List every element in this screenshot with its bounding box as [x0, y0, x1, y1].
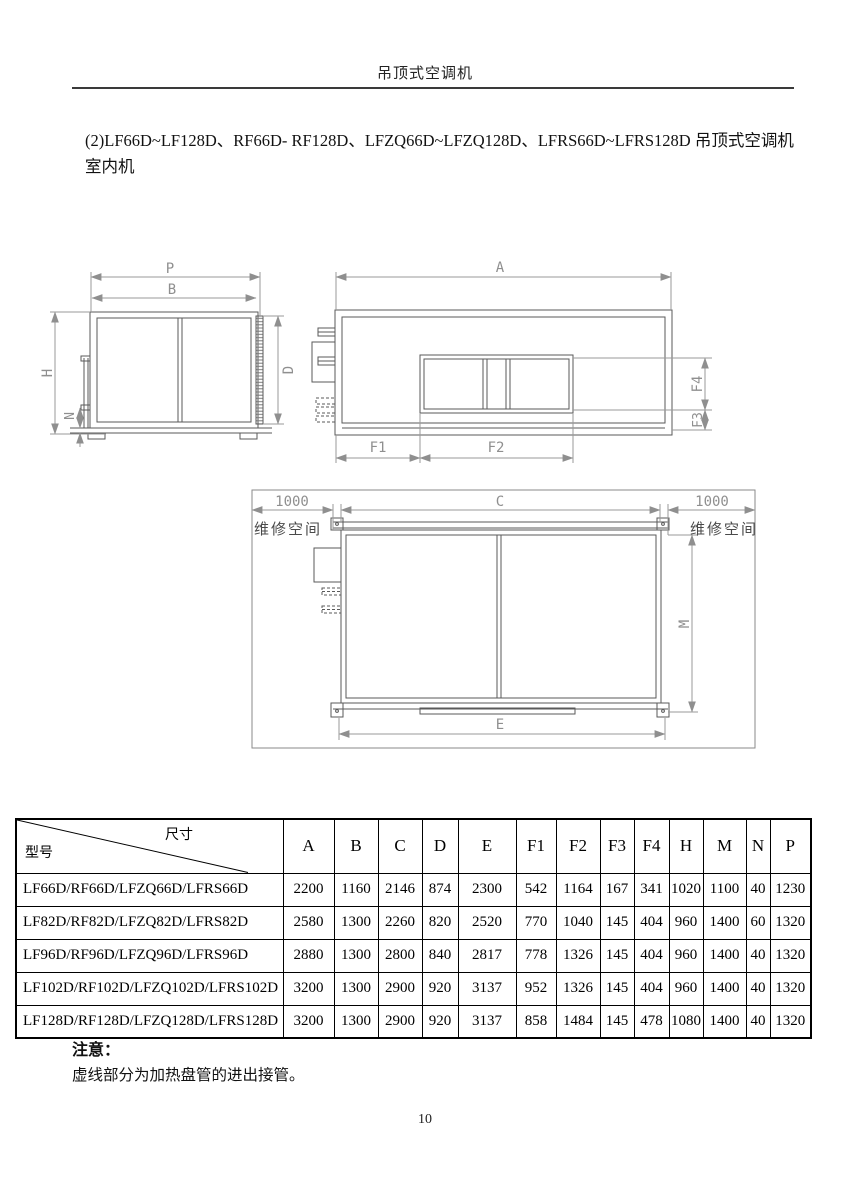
value-cell: 40 [746, 939, 770, 972]
value-cell: 1100 [703, 873, 746, 906]
value-cell: 1400 [703, 939, 746, 972]
table-row: LF128D/RF128D/LFZQ128D/LFRS128D320013002… [16, 1005, 811, 1038]
value-cell: 1164 [556, 873, 600, 906]
value-cell: 404 [634, 906, 669, 939]
dim-label-f2: F2 [488, 440, 505, 456]
col-header-f4: F4 [634, 819, 669, 873]
dimension-diagrams: P B H N D [0, 250, 850, 810]
value-cell: 60 [746, 906, 770, 939]
dim-label-f1: F1 [370, 440, 387, 456]
service-space-label-right: 维修空间 [690, 520, 758, 538]
dim-label-f4: F4 [690, 376, 706, 393]
value-cell: 840 [422, 939, 458, 972]
dim-label-a: A [496, 260, 505, 276]
value-cell: 145 [600, 1005, 634, 1038]
dim-label-n: N [63, 412, 78, 420]
model-cell: LF96D/RF96D/LFZQ96D/LFRS96D [16, 939, 283, 972]
model-cell: LF102D/RF102D/LFZQ102D/LFRS102D [16, 972, 283, 1005]
dim-label-service-gap-right: 1000 [695, 494, 729, 510]
value-cell: 2520 [458, 906, 516, 939]
value-cell: 1300 [334, 972, 378, 1005]
dimensions-table: 尺寸 型号 ABCDEF1F2F3F4HMNP LF66D/RF66D/LFZQ… [15, 818, 812, 1039]
value-cell: 1326 [556, 939, 600, 972]
value-cell: 858 [516, 1005, 556, 1038]
value-cell: 40 [746, 972, 770, 1005]
col-header-n: N [746, 819, 770, 873]
value-cell: 542 [516, 873, 556, 906]
value-cell: 478 [634, 1005, 669, 1038]
value-cell: 2880 [283, 939, 334, 972]
value-cell: 1320 [770, 972, 811, 1005]
model-cell: LF66D/RF66D/LFZQ66D/LFRS66D [16, 873, 283, 906]
value-cell: 1320 [770, 906, 811, 939]
value-cell: 874 [422, 873, 458, 906]
col-header-e: E [458, 819, 516, 873]
value-cell: 404 [634, 939, 669, 972]
value-cell: 2817 [458, 939, 516, 972]
value-cell: 2580 [283, 906, 334, 939]
value-cell: 1020 [669, 873, 703, 906]
service-space-label-left: 维修空间 [254, 520, 322, 538]
side-view-dimensions [336, 272, 712, 463]
value-cell: 1300 [334, 1005, 378, 1038]
col-header-h: H [669, 819, 703, 873]
col-header-m: M [703, 819, 746, 873]
value-cell: 40 [746, 1005, 770, 1038]
value-cell: 1400 [703, 1005, 746, 1038]
value-cell: 40 [746, 873, 770, 906]
notes-title: 注意： [72, 1036, 305, 1060]
value-cell: 1230 [770, 873, 811, 906]
value-cell: 3200 [283, 972, 334, 1005]
corner-label-dimension: 尺寸 [165, 824, 193, 844]
table-row: LF66D/RF66D/LFZQ66D/LFRS66D2200116021468… [16, 873, 811, 906]
value-cell: 2900 [378, 972, 422, 1005]
value-cell: 1080 [669, 1005, 703, 1038]
col-header-f3: F3 [600, 819, 634, 873]
value-cell: 145 [600, 906, 634, 939]
intro-paragraph: (2)LF66D~LF128D、RF66D- RF128D、LFZQ66D~LF… [85, 128, 797, 179]
value-cell: 1320 [770, 1005, 811, 1038]
value-cell: 145 [600, 972, 634, 1005]
value-cell: 3200 [283, 1005, 334, 1038]
page-number: 10 [0, 1112, 850, 1128]
value-cell: 960 [669, 906, 703, 939]
value-cell: 3137 [458, 1005, 516, 1038]
diagonal-divider [17, 820, 283, 873]
value-cell: 770 [516, 906, 556, 939]
table-header-row: 尺寸 型号 ABCDEF1F2F3F4HMNP [16, 819, 811, 873]
value-cell: 778 [516, 939, 556, 972]
col-header-f2: F2 [556, 819, 600, 873]
value-cell: 2146 [378, 873, 422, 906]
dim-label-c: C [496, 494, 504, 510]
col-header-d: D [422, 819, 458, 873]
value-cell: 1160 [334, 873, 378, 906]
value-cell: 920 [422, 1005, 458, 1038]
document-page: 吊顶式空调机 (2)LF66D~LF128D、RF66D- RF128D、LFZ… [0, 0, 850, 1202]
value-cell: 404 [634, 972, 669, 1005]
value-cell: 820 [422, 906, 458, 939]
page-header-title: 吊顶式空调机 [0, 62, 850, 83]
plan-view-drawing [314, 518, 669, 717]
value-cell: 1320 [770, 939, 811, 972]
dim-label-m: M [677, 620, 693, 628]
value-cell: 167 [600, 873, 634, 906]
model-cell: LF128D/RF128D/LFZQ128D/LFRS128D [16, 1005, 283, 1038]
end-view-dimensions [50, 272, 284, 447]
table-row: LF102D/RF102D/LFZQ102D/LFRS102D320013002… [16, 972, 811, 1005]
value-cell: 920 [422, 972, 458, 1005]
value-cell: 1300 [334, 939, 378, 972]
dim-label-p: P [166, 261, 174, 277]
value-cell: 1400 [703, 972, 746, 1005]
dim-label-h: H [40, 369, 56, 377]
value-cell: 1300 [334, 906, 378, 939]
table-row: LF82D/RF82D/LFZQ82D/LFRS82D2580130022608… [16, 906, 811, 939]
col-header-b: B [334, 819, 378, 873]
value-cell: 2800 [378, 939, 422, 972]
value-cell: 960 [669, 972, 703, 1005]
value-cell: 1326 [556, 972, 600, 1005]
col-header-p: P [770, 819, 811, 873]
dim-label-d: D [281, 366, 297, 374]
side-view-drawing [312, 310, 672, 435]
value-cell: 145 [600, 939, 634, 972]
value-cell: 3137 [458, 972, 516, 1005]
table-row: LF96D/RF96D/LFZQ96D/LFRS96D2880130028008… [16, 939, 811, 972]
col-header-a: A [283, 819, 334, 873]
notes-body: 虚线部分为加热盘管的进出接管。 [72, 1063, 305, 1085]
corner-label-model: 型号 [25, 842, 53, 862]
value-cell: 1040 [556, 906, 600, 939]
dim-label-e: E [496, 717, 504, 733]
value-cell: 1484 [556, 1005, 600, 1038]
value-cell: 952 [516, 972, 556, 1005]
value-cell: 2260 [378, 906, 422, 939]
value-cell: 1400 [703, 906, 746, 939]
notes-block: 注意： 虚线部分为加热盘管的进出接管。 [72, 1036, 305, 1085]
model-cell: LF82D/RF82D/LFZQ82D/LFRS82D [16, 906, 283, 939]
dim-label-b: B [168, 282, 176, 298]
value-cell: 2300 [458, 873, 516, 906]
value-cell: 960 [669, 939, 703, 972]
value-cell: 341 [634, 873, 669, 906]
dim-label-f3: F3 [691, 412, 706, 428]
end-view-drawing [70, 312, 272, 439]
col-header-c: C [378, 819, 422, 873]
corner-header-cell: 尺寸 型号 [16, 819, 283, 873]
col-header-f1: F1 [516, 819, 556, 873]
value-cell: 2900 [378, 1005, 422, 1038]
header-divider [72, 87, 794, 89]
value-cell: 2200 [283, 873, 334, 906]
dim-label-service-gap-left: 1000 [275, 494, 309, 510]
